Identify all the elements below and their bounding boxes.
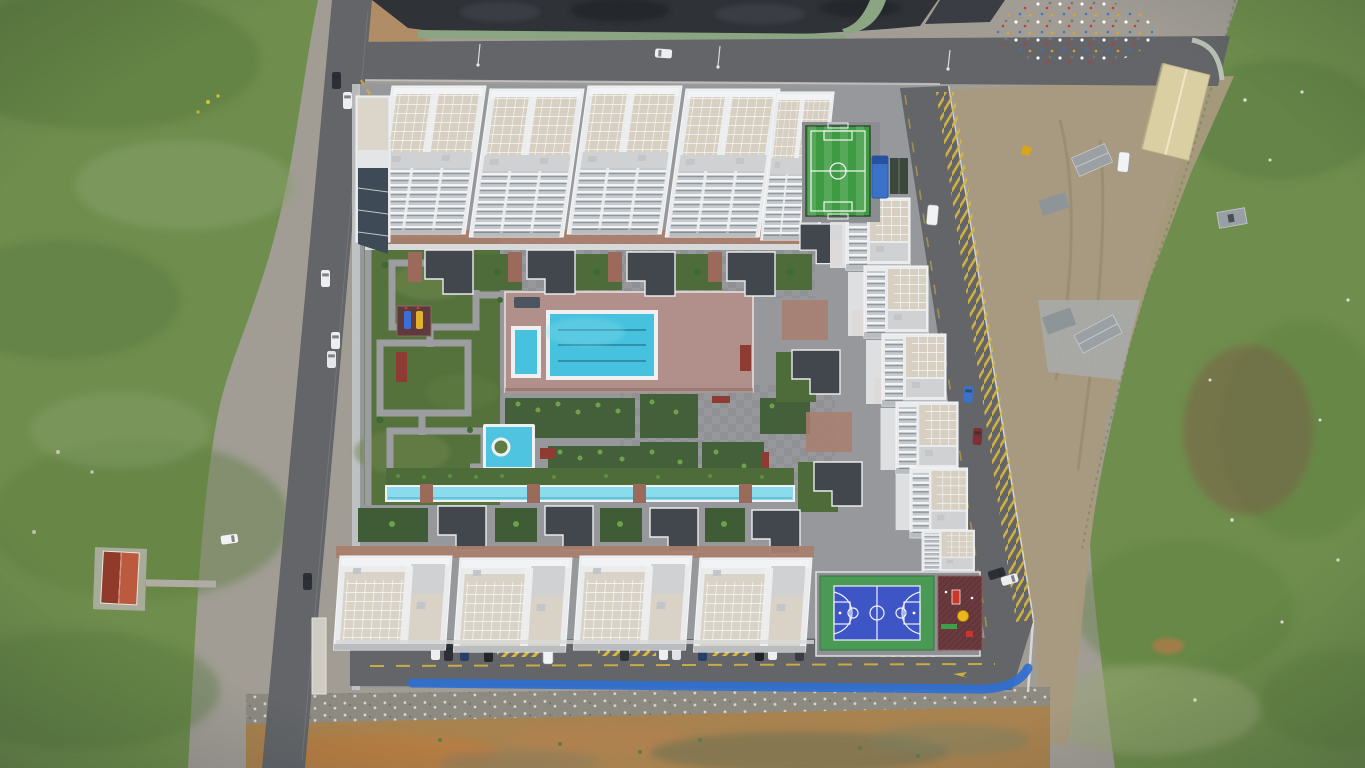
- vignette-overlay: [0, 0, 1365, 768]
- aerial-photo: [0, 0, 1365, 768]
